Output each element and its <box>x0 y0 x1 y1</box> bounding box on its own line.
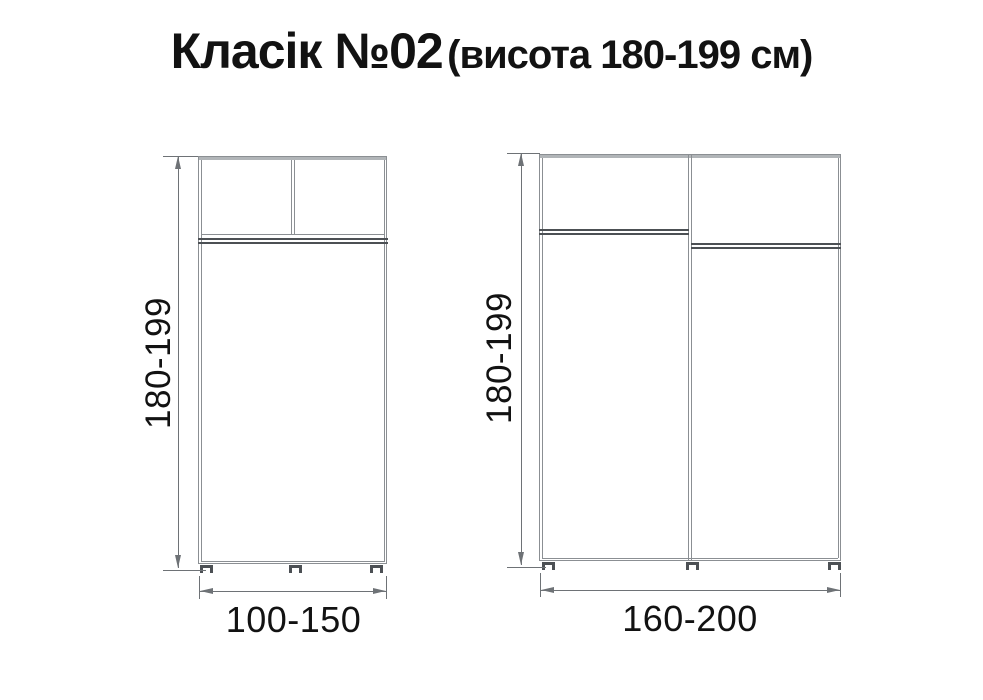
extension-line <box>507 567 546 568</box>
dimension-line <box>200 591 386 592</box>
extension-line <box>386 576 387 599</box>
cabinet-foot <box>686 562 699 570</box>
arrow-right-icon <box>827 587 840 593</box>
cabinet-foot <box>370 565 383 573</box>
arrow-left-icon <box>200 588 213 594</box>
title-main: Класік №02 <box>171 23 443 79</box>
title-sub: (висота 180-199 см) <box>447 33 812 77</box>
extension-line <box>840 573 841 597</box>
bottom-panel-line <box>201 561 385 562</box>
extension-line <box>507 153 540 154</box>
left-side-panel-line <box>201 160 202 561</box>
cabinet-top-panel <box>199 157 386 160</box>
upper-compartment-divider-line <box>294 160 295 234</box>
cabinet-top-panel <box>540 155 840 158</box>
height-dimension-label: 180-199 <box>139 278 179 448</box>
center-divider-line <box>688 155 689 560</box>
arrow-down-icon <box>518 552 524 565</box>
arrow-up-icon <box>175 156 181 169</box>
cabinet-outline <box>198 156 387 564</box>
left-shelf-line <box>539 229 689 231</box>
page-title: Класік №02 (висота 180-199 см) <box>0 22 983 80</box>
cabinet-foot <box>828 562 841 570</box>
arrow-up-icon <box>518 153 524 166</box>
cabinet-foot <box>200 565 213 573</box>
right-side-panel-line <box>384 160 385 561</box>
left-side-panel-line <box>542 158 543 558</box>
arrow-left-icon <box>541 587 554 593</box>
cabinet-foot <box>542 562 555 570</box>
bottom-panel-line <box>542 558 838 559</box>
right-shelf-line <box>691 243 841 245</box>
height-dimension-label: 180-199 <box>480 273 520 443</box>
right-shelf-line <box>691 247 841 249</box>
wardrobe-dimension-diagram: Класік №02 (висота 180-199 см) 180-199 <box>0 0 983 700</box>
upper-compartment-bottom-line <box>202 234 385 235</box>
right-side-panel-line <box>838 158 839 558</box>
width-dimension-label: 100-150 <box>196 599 391 641</box>
cabinet-outline <box>539 154 841 561</box>
left-shelf-line <box>539 233 689 235</box>
arrow-right-icon <box>373 588 386 594</box>
cabinet-foot <box>289 565 302 573</box>
shelf-line <box>198 238 388 240</box>
extension-line <box>163 570 206 571</box>
width-dimension-label: 160-200 <box>590 598 790 640</box>
dimension-line <box>541 590 840 591</box>
extension-line <box>540 573 541 597</box>
extension-line <box>163 156 198 157</box>
arrow-down-icon <box>175 555 181 568</box>
center-divider-line <box>691 155 692 560</box>
upper-compartment-divider-line <box>291 160 292 234</box>
dimension-line <box>521 154 522 565</box>
shelf-line <box>198 242 388 244</box>
